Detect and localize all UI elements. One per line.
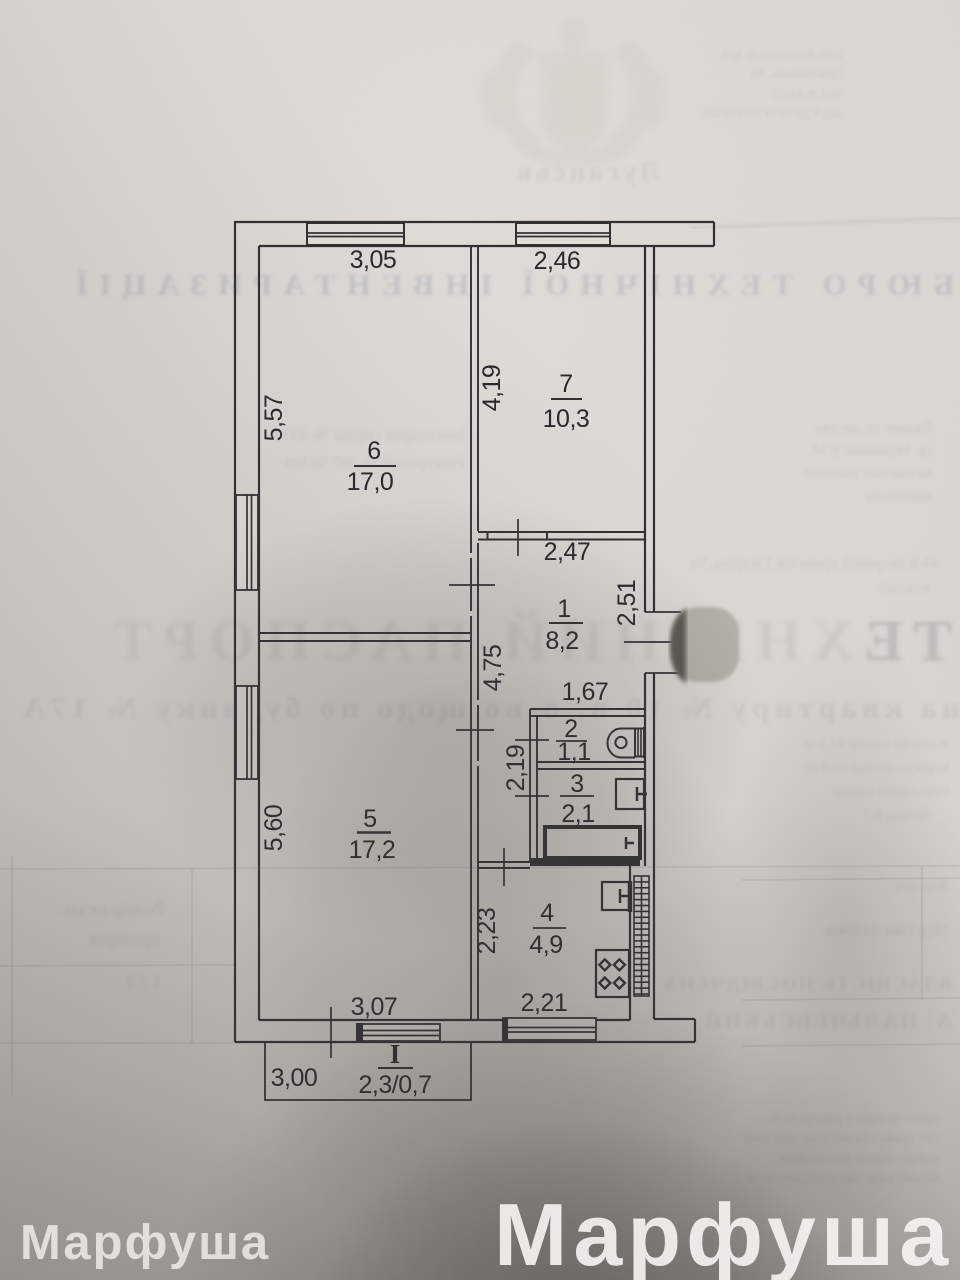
svg-text:Марфуша: Марфуша [20,1216,270,1270]
svg-text:Марфуша: Марфуша [494,1185,953,1280]
